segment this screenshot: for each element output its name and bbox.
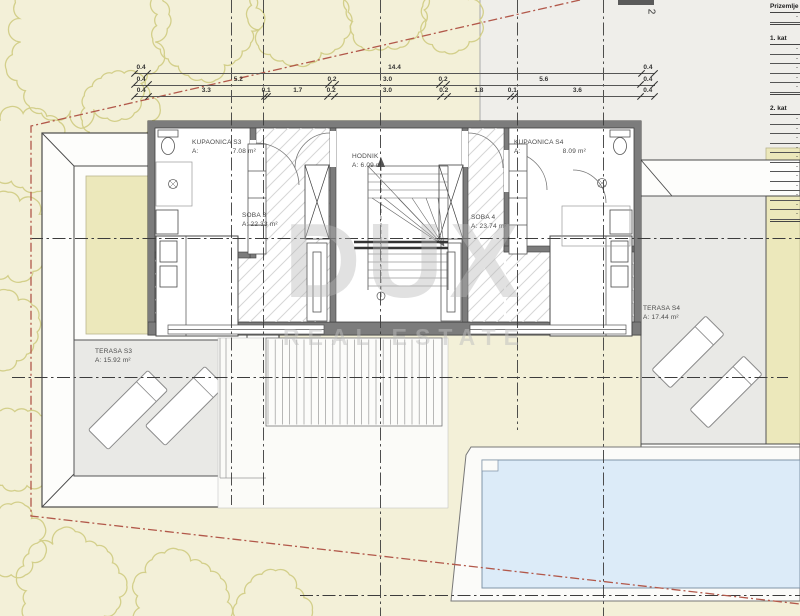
legend-row: - [770,13,800,23]
section-marker: 2 [645,9,656,15]
wardrobe-right [441,243,461,321]
area-value: 7.08 m² [233,147,256,156]
dimension-value: 0.4 [643,76,652,83]
legend-section-title: 2. kat [770,104,800,113]
room-label-hodnik: HODNIK A: 6.09 m² [352,152,394,170]
room-area: A: 7.08 m² [192,147,256,156]
pool-water [482,460,800,588]
area-prefix: A: [514,147,521,156]
dimension-value: 0.2 [327,87,336,94]
room-label-kupaonica-s4: KUPAONICA S4 A: 8.09 m² [514,138,586,156]
section-mark-bar [618,0,654,5]
nightstand [156,210,178,234]
legend-row: - [770,45,800,55]
dimension-value: 5.2 [234,76,243,83]
lower-deck [218,338,448,508]
toilet-icon [610,130,630,137]
dimension-line [134,96,655,97]
floor-plan-page: DUX REAL ESTATE 2 KUPAONICA S3 A: 7.08 m… [0,0,800,616]
legend-section-title: Prizemlje [770,2,800,11]
room-label-kupaonica-s3: KUPAONICA S3 A: 7.08 m² [192,138,256,156]
dimension-value: 0.4 [137,64,146,71]
legend-row: - [770,55,800,65]
nightstand [610,210,632,234]
room-name: KUPAONICA S4 [514,138,586,147]
legend-gap [770,95,800,104]
pergola-louvers-frame [266,338,442,426]
dimension-value: 14.4 [388,64,401,71]
room-label-terasa-s4: TERASA S4 A: 17.44 m² [643,304,697,322]
dimension-value: 1.7 [293,87,302,94]
dimension-value: 0.4 [643,64,652,71]
legend-row: - [770,163,800,173]
pool-step [482,460,498,471]
dimension-value: 0.2 [439,87,448,94]
room-name: HODNIK [352,152,394,161]
room-area: A: 22.33 m² [242,220,290,229]
wardrobe-left [307,243,327,321]
room-area: A: 17.44 m² [643,313,697,322]
room-label-terasa-s3: TERASA S3 A: 15.92 m² [95,347,149,365]
area-value: 8.09 m² [563,147,586,156]
dimension-value: 0.2 [327,76,336,83]
legend-row: - [770,134,800,144]
legend-section-title: 1. kat [770,34,800,43]
dimension-value: 0.4 [643,87,652,94]
shaft-right [439,165,463,239]
room-name: TERASA S3 [95,347,149,356]
room-area: A: 6.09 m² [352,161,394,170]
legend-row: - [770,64,800,74]
legend-table: Prizemlje-1. kat-----2. kat----------- [770,0,800,231]
dimension-line [134,73,655,74]
legend-row: - [770,201,800,211]
planter-panel-left [86,176,148,334]
dimension-value: 1.8 [474,87,483,94]
room-name: KUPAONICA S3 [192,138,256,147]
room-label-soba-3: SOBA 3 A: 22.33 m² [242,211,290,229]
legend-row: - [770,182,800,192]
dimension-value: 0.4 [137,76,146,83]
dimension-value: 3.3 [202,87,211,94]
room-name: TERASA S4 [643,304,697,313]
dimension-value: 0.4 [137,87,146,94]
dimension-value: 3.0 [383,87,392,94]
dimension-value: 5.6 [539,76,548,83]
legend-row: - [770,153,800,163]
legend-gap [770,222,800,231]
legend-row: - [770,144,800,154]
closet-kupaonica-s4 [509,144,527,254]
legend-row: - [770,125,800,135]
dimension-value: 0.2 [439,76,448,83]
room-area: A: 8.09 m² [514,147,586,156]
legend-row: - [770,115,800,125]
dimension-line [134,85,655,86]
legend-row: - [770,191,800,201]
legend-row: - [770,172,800,182]
shaft-left [305,165,329,239]
legend-row: - [770,210,800,220]
pool [451,447,800,601]
legend-gap [770,25,800,34]
legend-row: - [770,74,800,84]
area-prefix: A: [192,147,199,156]
legend-row: - [770,83,800,93]
room-area: A: 15.92 m² [95,356,149,365]
toilet-icon [158,130,178,137]
dimension-value: 3.6 [573,87,582,94]
room-label-soba-4: SOBA 4 A: 23.74 m² [471,213,519,231]
room-name: SOBA 4 [471,213,519,222]
dimension-value: 3.0 [383,76,392,83]
room-name: SOBA 3 [242,211,290,220]
room-area: A: 23.74 m² [471,222,519,231]
